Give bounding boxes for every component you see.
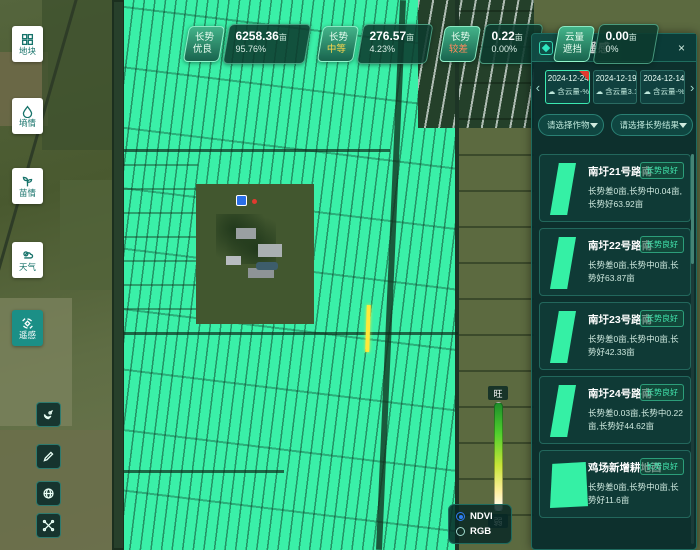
stat-tag-line2: 优良 — [193, 44, 212, 56]
stat-value-growth-medium: 276.57亩 4.23% — [356, 24, 433, 64]
plot-description: 长势差0亩,长势中0亩,长势好11.6亩 — [588, 481, 684, 507]
plot-list-item[interactable]: 鸡场新增耕地西 长势良好 长势差0亩,长势中0亩,长势好11.6亩 — [539, 450, 691, 518]
stat-tag-growth-poor: 长势 较差 — [439, 26, 481, 62]
map-field-divider — [124, 149, 390, 152]
sidebar-item-soil-moisture[interactable]: 墒情 — [12, 98, 43, 134]
growth-status-badge: 长势良好 — [640, 310, 684, 327]
stat-tag-growth-excellent: 长势 优良 — [183, 26, 225, 62]
tool-satellite-dish-button[interactable] — [36, 402, 61, 427]
new-badge-icon — [579, 71, 589, 81]
chevron-down-icon — [679, 123, 687, 128]
stat-tag-line2: 较差 — [449, 44, 468, 56]
growth-result-select[interactable]: 请选择长势结果 — [611, 114, 694, 136]
panel-scrollbar[interactable] — [691, 154, 694, 544]
date-chip[interactable]: 2024-12-19 ☁ 含云量3.13% — [593, 70, 638, 104]
sidebar-item-label: 墒情 — [19, 119, 36, 128]
map-building — [258, 244, 282, 257]
date-label: 2024-12-14 — [643, 74, 682, 83]
satellite-icon — [21, 317, 34, 330]
stat-percent: 95.76% — [235, 44, 299, 54]
radio-unselected-icon[interactable] — [456, 527, 465, 536]
layers-icon — [21, 33, 34, 46]
stat-area: 0.00 — [605, 29, 628, 43]
sidebar-item-label: 地块 — [19, 47, 36, 56]
map-road — [455, 0, 459, 550]
layer-option-ndvi[interactable]: NDVI — [456, 511, 504, 522]
stat-tag-line2: 遮挡 — [563, 44, 582, 56]
sidebar-item-plots[interactable]: 地块 — [12, 26, 43, 62]
map-natural-fields — [124, 148, 198, 332]
layer-option-rgb[interactable]: RGB — [456, 526, 504, 537]
stat-tag-line1: 长势 — [330, 32, 349, 44]
plot-description: 长势差0亩,长势中0亩,长势好42.33亩 — [588, 333, 684, 359]
sidebar-item-label: 天气 — [19, 263, 36, 272]
cloud-label: 含云量-% — [557, 87, 589, 96]
stat-percent: 0.00% — [491, 44, 531, 54]
sprout-icon — [21, 175, 34, 188]
layer-toggle: NDVI RGB — [448, 504, 512, 544]
weather-icon — [21, 249, 34, 262]
droplet-icon — [21, 105, 34, 118]
plot-shape-thumbnail — [550, 462, 588, 508]
map-field-patch — [60, 180, 120, 290]
map-pin-marker[interactable] — [236, 195, 247, 206]
stat-tag-growth-medium: 长势 中等 — [317, 26, 359, 62]
plot-shape-thumbnail — [550, 163, 576, 215]
date-chip[interactable]: 2024-12-24 ☁ 含云量-% — [545, 70, 590, 104]
stat-tag-cloud-cover: 云量 遮挡 — [553, 26, 595, 62]
plot-description: 长势差0亩,长势中0.04亩,长势好63.92亩 — [588, 185, 684, 211]
select-placeholder: 请选择作物 — [547, 119, 590, 131]
layer-label: NDVI — [470, 511, 493, 522]
map-building — [226, 256, 241, 265]
diamond-icon — [539, 41, 553, 55]
tool-measure-button[interactable] — [36, 513, 61, 538]
close-icon[interactable]: × — [674, 39, 689, 57]
growth-status-badge: 长势良好 — [640, 458, 684, 475]
plot-shape-thumbnail — [550, 385, 576, 437]
satellite-dish-icon — [42, 408, 55, 421]
cloud-icon: ☁ — [548, 87, 556, 96]
sidebar-item-weather[interactable]: 天气 — [12, 242, 43, 278]
select-placeholder: 请选择长势结果 — [620, 119, 680, 131]
date-chip[interactable]: 2024-12-14 ☁ 含云量-% — [640, 70, 685, 104]
pencil-icon — [42, 450, 55, 463]
legend-top-label: 旺 — [488, 386, 508, 400]
stat-percent: 4.23% — [369, 44, 421, 54]
tool-draw-button[interactable] — [36, 444, 61, 469]
map-pond — [256, 262, 278, 270]
stat-area: 0.22 — [491, 29, 514, 43]
stat-percent: 0% — [605, 44, 647, 54]
plot-description: 长势差0.03亩,长势中0.22亩,长势好44.62亩 — [588, 407, 684, 433]
crop-select[interactable]: 请选择作物 — [538, 114, 604, 136]
plot-description: 长势差0亩,长势中0亩,长势好63.87亩 — [588, 259, 684, 285]
chevron-down-icon — [590, 123, 598, 128]
stat-unit: 亩 — [406, 33, 414, 42]
map-field-divider — [124, 470, 284, 473]
scrollbar-thumb[interactable] — [691, 154, 694, 264]
map-village-area — [196, 184, 314, 324]
sidebar-item-remote-sensing[interactable]: 遥感 — [12, 310, 43, 346]
date-label: 2024-12-19 — [596, 74, 635, 83]
map-building — [236, 228, 256, 239]
sidebar-item-label: 遥感 — [19, 331, 36, 340]
stat-unit: 亩 — [279, 33, 287, 42]
date-selector: ‹ 2024-12-24 ☁ 含云量-% 2024-12-19 ☁ 含云量3.1… — [534, 70, 696, 104]
prev-date-arrow[interactable]: ‹ — [534, 80, 542, 95]
next-date-arrow[interactable]: › — [688, 80, 696, 95]
stat-value-cloud-cover: 0.00亩 0% — [592, 24, 659, 64]
plot-list-item[interactable]: 南圩22号路南 长势良好 长势差0亩,长势中0亩,长势好63.87亩 — [539, 228, 691, 296]
map-field-divider — [124, 332, 458, 335]
cloud-icon: ☁ — [643, 87, 651, 96]
layer-label: RGB — [470, 526, 491, 537]
plot-list-item[interactable]: 南圩23号路南 长势良好 长势差0亩,长势中0亩,长势好42.33亩 — [539, 302, 691, 370]
stat-area: 6258.36 — [235, 29, 278, 43]
plot-list-item[interactable]: 南圩21号路南 长势良好 长势差0亩,长势中0.04亩,长势好63.92亩 — [539, 154, 691, 222]
stat-unit: 亩 — [629, 33, 637, 42]
plot-list-item[interactable]: 南圩24号路南 长势良好 长势差0.03亩,长势中0.22亩,长势好44.62亩 — [539, 376, 691, 444]
growth-status-badge: 长势良好 — [640, 384, 684, 401]
sidebar-item-label: 苗情 — [19, 189, 36, 198]
cloud-label: 含云量3.13% — [605, 87, 637, 96]
measure-icon — [42, 519, 55, 532]
filter-row: 请选择作物 请选择长势结果 — [538, 114, 692, 136]
stat-value-growth-excellent: 6258.36亩 95.76% — [222, 24, 311, 64]
cloud-label: 含云量-% — [653, 87, 685, 96]
plot-shape-thumbnail — [550, 311, 576, 363]
map-dot-marker — [252, 199, 257, 204]
cloud-icon: ☁ — [596, 87, 604, 96]
legend-gradient-bar — [494, 402, 503, 512]
plot-shape-thumbnail — [550, 237, 576, 289]
stat-unit: 亩 — [515, 33, 523, 42]
stat-area: 276.57 — [369, 29, 406, 43]
radio-selected-icon[interactable] — [456, 512, 465, 521]
stat-tag-line1: 长势 — [196, 32, 215, 44]
stat-tag-line2: 中等 — [327, 44, 346, 56]
app-window: 地块 墒情 苗情 天气 遥感 长势 优良 6258.36亩 95.76% — [0, 0, 700, 550]
stat-tag-line1: 云量 — [566, 32, 585, 44]
satellite-remote-sensing-panel: 卫星遥感 × ‹ 2024-12-24 ☁ 含云量-% 2024-12-19 ☁… — [531, 33, 697, 550]
tool-globe-button[interactable] — [36, 481, 61, 506]
growth-status-badge: 长势良好 — [640, 236, 684, 253]
sidebar-item-seedling[interactable]: 苗情 — [12, 168, 43, 204]
stat-tag-line1: 长势 — [452, 32, 471, 44]
growth-status-badge: 长势良好 — [640, 162, 684, 179]
globe-icon — [42, 487, 55, 500]
